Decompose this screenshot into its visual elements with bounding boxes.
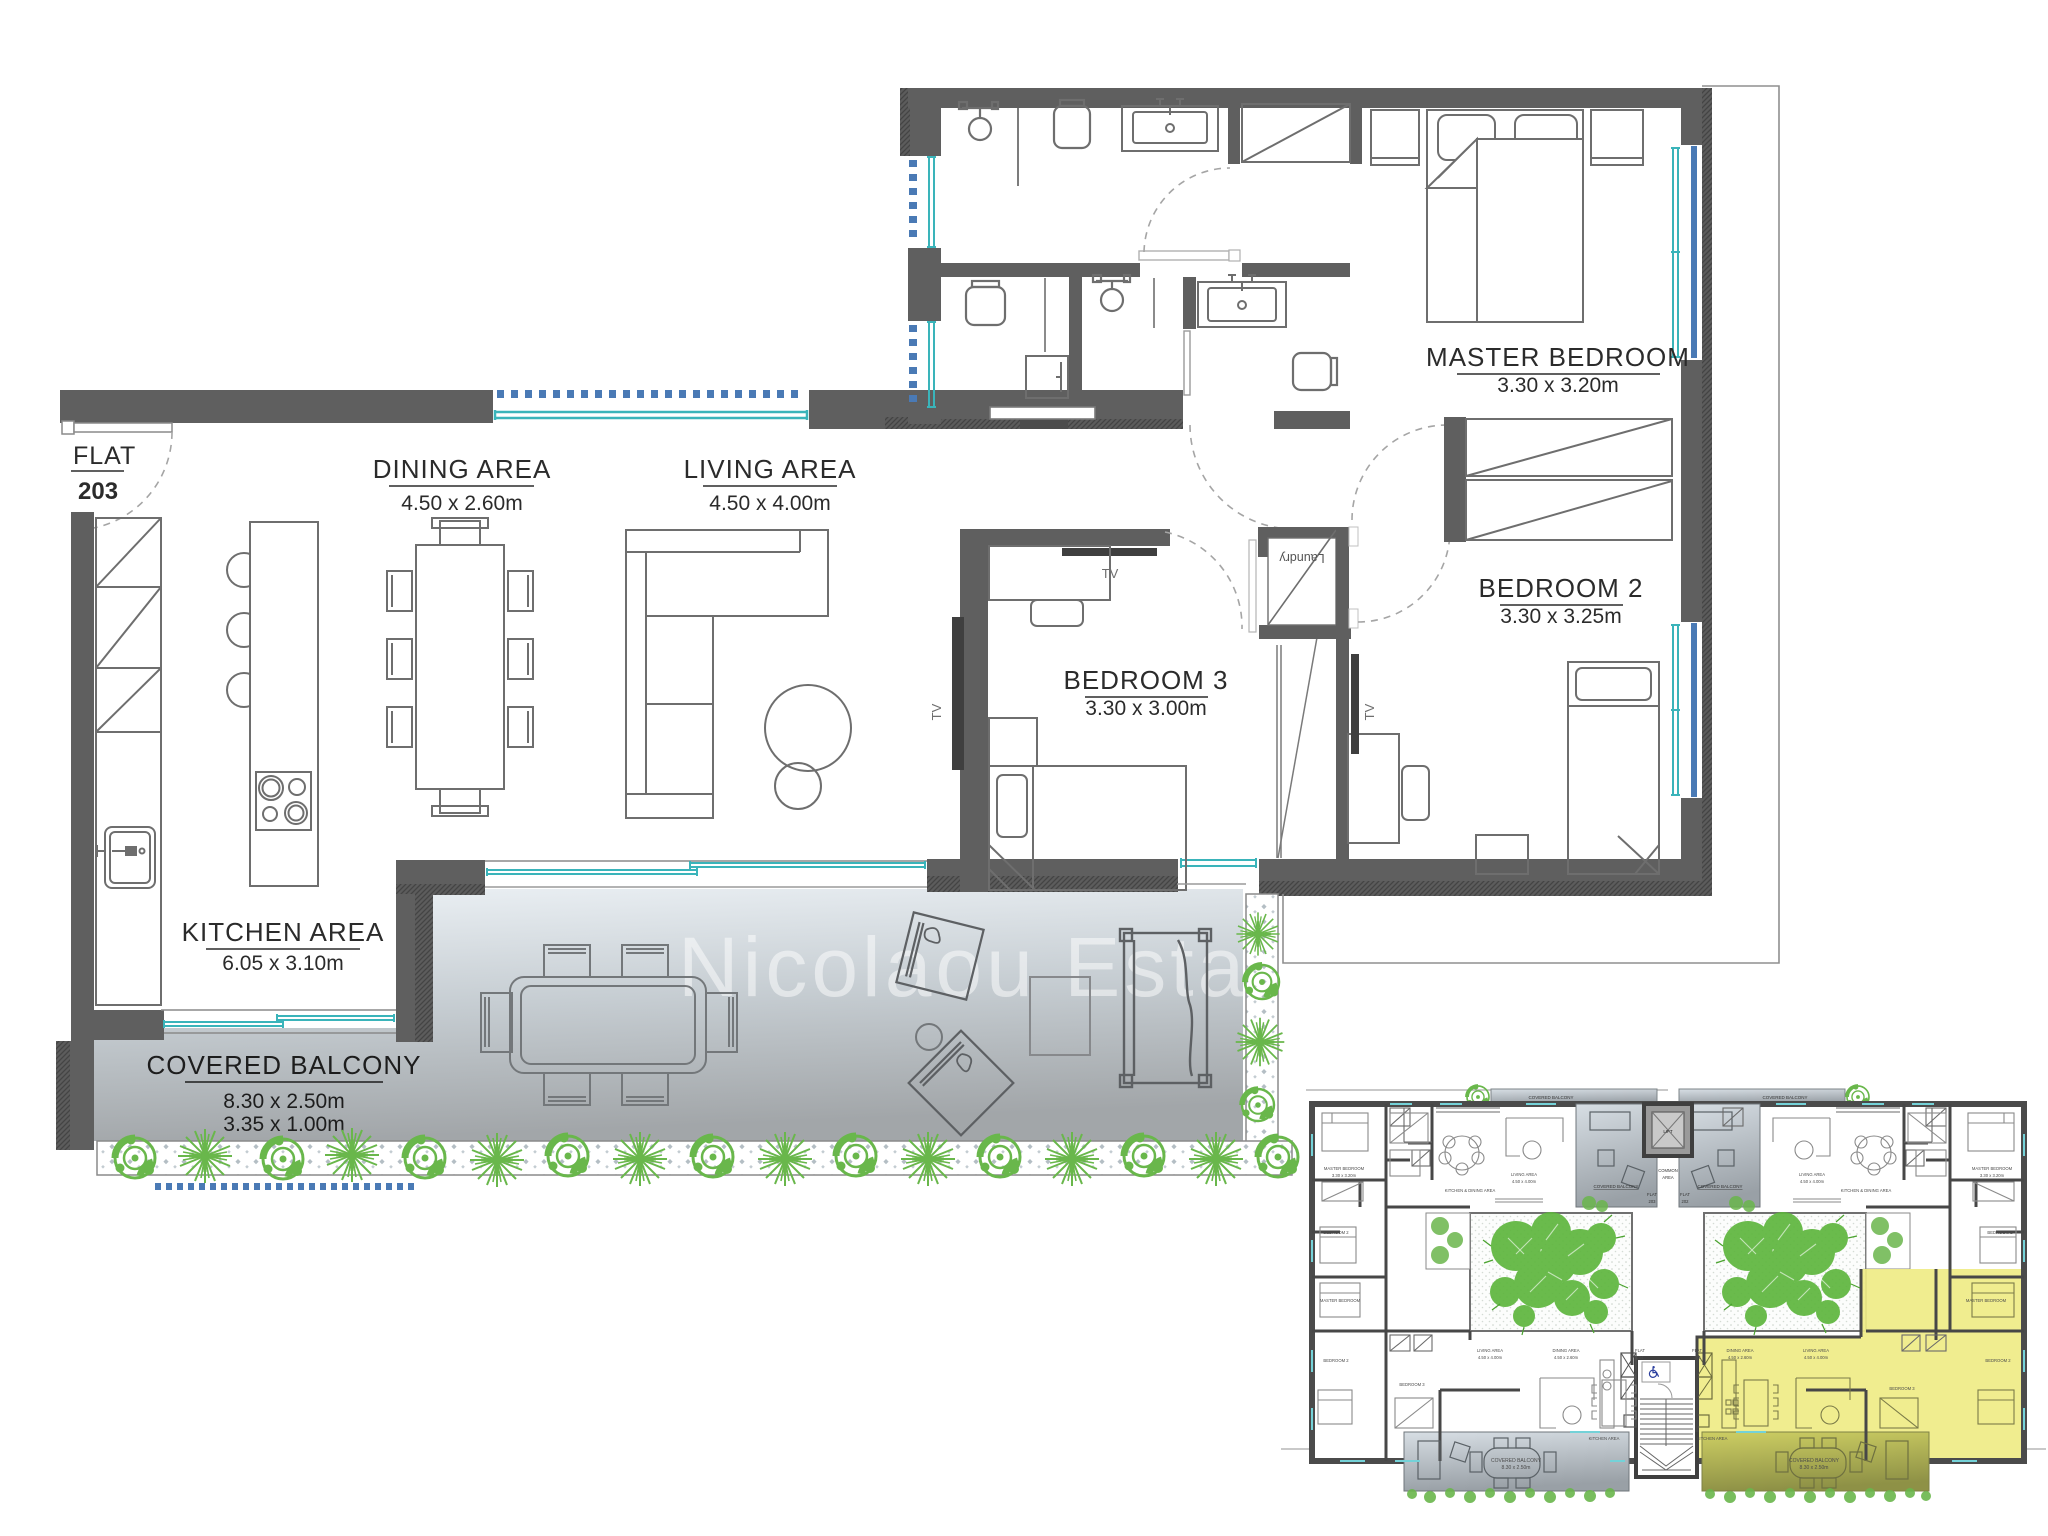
svg-text:BEDROOM 2: BEDROOM 2 [1323,1230,1349,1235]
svg-text:4.50 x 4.00m: 4.50 x 4.00m [1478,1355,1503,1360]
svg-text:COVERED BALCONY: COVERED BALCONY [1593,1184,1638,1189]
svg-text:AREA: AREA [1662,1175,1674,1180]
svg-text:FLAT: FLAT [1635,1348,1645,1353]
svg-text:COVERED BALCONY: COVERED BALCONY [1697,1184,1742,1189]
svg-text:LIVING AREA: LIVING AREA [1477,1348,1503,1353]
svg-text:8.30 x 2.50m: 8.30 x 2.50m [1800,1465,1829,1471]
svg-text:202: 202 [1682,1199,1690,1204]
svg-text:COVERED BALCONY: COVERED BALCONY [1789,1458,1840,1464]
svg-text:LIVING AREA: LIVING AREA [1803,1348,1829,1353]
svg-text:204: 204 [1637,1355,1645,1360]
svg-text:COVERED BALCONY: COVERED BALCONY [1491,1458,1542,1464]
svg-text:4.50 x 4.00m: 4.50 x 4.00m [1800,1179,1825,1184]
svg-text:MASTER BEDROOM: MASTER BEDROOM [1320,1298,1361,1303]
svg-text:8.30 x 2.50m: 8.30 x 2.50m [223,1090,344,1113]
svg-text:4.50 x 4.00m: 4.50 x 4.00m [1804,1355,1829,1360]
svg-text:DINING AREA: DINING AREA [373,454,552,484]
svg-text:KITCHEN AREA: KITCHEN AREA [1697,1436,1728,1441]
svg-text:COVERED BALCONY: COVERED BALCONY [1762,1095,1807,1100]
svg-text:BEDROOM 2: BEDROOM 2 [1987,1230,2013,1235]
svg-text:MASTER BEDROOM: MASTER BEDROOM [1426,342,1690,372]
svg-text:KITCHEN AREA: KITCHEN AREA [1589,1436,1620,1441]
svg-text:4.50 x 4.00m: 4.50 x 4.00m [1512,1179,1537,1184]
svg-text:3.30 x 3.25m: 3.30 x 3.25m [1500,605,1621,628]
svg-text:FLAT: FLAT [1692,1348,1702,1353]
svg-text:FLAT: FLAT [1647,1192,1657,1197]
svg-text:3.35 x 1.00m: 3.35 x 1.00m [223,1113,344,1136]
svg-text:Laundry: Laundry [1279,551,1325,565]
svg-text:4.50 x 4.00m: 4.50 x 4.00m [709,492,830,515]
svg-text:MASTER BEDROOM: MASTER BEDROOM [1972,1166,2013,1171]
svg-text:DINING AREA: DINING AREA [1553,1348,1580,1353]
svg-text:6.05 x 3.10m: 6.05 x 3.10m [222,952,343,975]
svg-text:MASTER BEDROOM: MASTER BEDROOM [1966,1298,2007,1303]
svg-text:LIFT: LIFT [1663,1129,1673,1134]
svg-text:TV: TV [1362,703,1377,720]
svg-text:FLAT: FLAT [1680,1192,1690,1197]
svg-text:3.30 x 3.00m: 3.30 x 3.00m [1085,697,1206,720]
svg-text:COVERED BALCONY: COVERED BALCONY [1528,1095,1573,1100]
svg-text:203: 203 [1649,1199,1657,1204]
svg-text:203: 203 [1694,1355,1702,1360]
svg-text:COVERED BALCONY: COVERED BALCONY [146,1050,421,1080]
svg-text:BEDROOM 2: BEDROOM 2 [1985,1358,2011,1363]
svg-text:4.50 x 2.60m: 4.50 x 2.60m [1554,1355,1579,1360]
svg-text:3.30 x 3.20m: 3.30 x 3.20m [1980,1173,2005,1178]
svg-text:LIVING AREA: LIVING AREA [1511,1172,1537,1177]
svg-text:KITCHEN & DINING AREA: KITCHEN & DINING AREA [1445,1188,1496,1193]
svg-text:KITCHEN & DINING AREA: KITCHEN & DINING AREA [1841,1188,1892,1193]
svg-text:LIVING AREA: LIVING AREA [1799,1172,1825,1177]
svg-text:4.50 x 2.60m: 4.50 x 2.60m [401,492,522,515]
svg-text:BEDROOM 2: BEDROOM 2 [1323,1358,1349,1363]
svg-text:TV: TV [929,703,944,720]
svg-text:MASTER BEDROOM: MASTER BEDROOM [1324,1166,1365,1171]
svg-text:3.30 x 3.20m: 3.30 x 3.20m [1332,1173,1357,1178]
svg-text:BEDROOM 3: BEDROOM 3 [1063,665,1228,695]
svg-text:BEDROOM 3: BEDROOM 3 [1399,1382,1425,1387]
svg-text:203: 203 [78,478,118,505]
svg-text:DINING AREA: DINING AREA [1727,1348,1754,1353]
svg-text:BEDROOM 2: BEDROOM 2 [1478,573,1643,603]
svg-text:KITCHEN AREA: KITCHEN AREA [182,917,385,947]
svg-text:COMMON: COMMON [1658,1168,1678,1173]
svg-text:BEDROOM 3: BEDROOM 3 [1889,1386,1915,1391]
svg-text:4.50 x 2.60m: 4.50 x 2.60m [1728,1355,1753,1360]
svg-text:8.30 x 2.50m: 8.30 x 2.50m [1502,1465,1531,1471]
svg-text:FLAT: FLAT [73,442,136,470]
svg-text:LIVING AREA: LIVING AREA [684,454,857,484]
svg-text:3.30 x 3.20m: 3.30 x 3.20m [1497,374,1618,397]
